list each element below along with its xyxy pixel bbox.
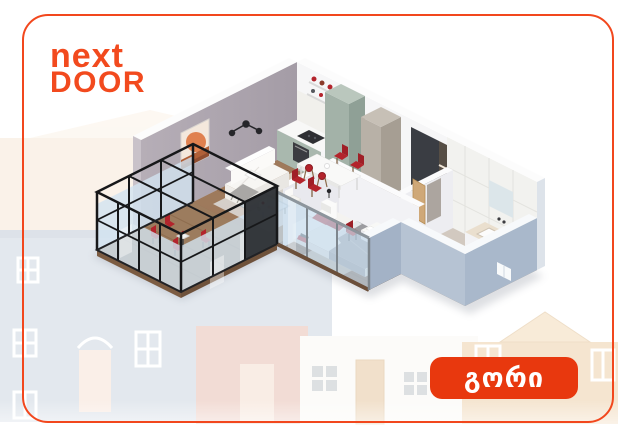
poster-card: next DOOR გორი [0,0,640,447]
location-badge-button[interactable]: გორი [430,357,578,399]
lamp [327,189,331,193]
logo-text-door: DOOR [50,70,146,95]
nextdoor-logo: next DOOR [50,42,146,95]
